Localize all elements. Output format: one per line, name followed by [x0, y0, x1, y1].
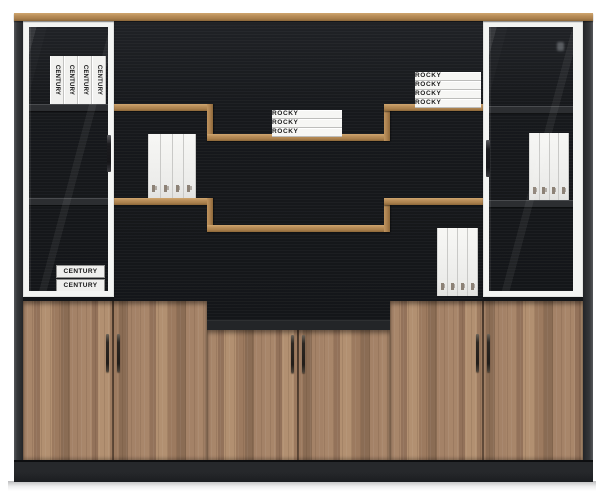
lower-doors-right: [390, 301, 583, 460]
binder-group-right-cabinet: [529, 133, 569, 200]
rocky-book: ROCKY: [415, 81, 481, 90]
binder: [550, 133, 560, 200]
bookcase-photo: ROCKY ROCKY ROCKY ROCKY ROCKY ROCKY ROCK…: [0, 0, 603, 500]
cabinet-shelf: [29, 198, 108, 205]
rocky-book-stack-right: ROCKY ROCKY ROCKY ROCKY: [415, 72, 481, 108]
binder: [173, 134, 185, 198]
binder: [529, 133, 540, 200]
century-book: CENTURY: [64, 56, 78, 104]
century-book: CENTURY: [50, 56, 64, 104]
top-trim: [14, 13, 593, 21]
base-plinth: [14, 460, 593, 482]
side-panel-left: [14, 20, 23, 482]
cabinet-shelf: [489, 106, 573, 113]
binder: [184, 134, 196, 198]
glass-cabinet-left-interior: CENTURY CENTURY CENTURY CENTURY CENTURY …: [29, 27, 108, 291]
century-book: CENTURY: [56, 265, 105, 278]
rocky-book: ROCKY: [272, 128, 342, 137]
shelf2-middle-low: [207, 225, 390, 232]
century-spine-books: CENTURY CENTURY CENTURY CENTURY: [50, 56, 106, 104]
lower-doors-left: [23, 301, 207, 460]
glass-cabinet-left: CENTURY CENTURY CENTURY CENTURY CENTURY …: [23, 21, 114, 297]
century-book: CENTURY: [92, 56, 106, 104]
century-book: CENTURY: [78, 56, 92, 104]
shelf1-left-high: [108, 104, 213, 111]
lower-doors-center: [207, 330, 390, 460]
glass-door-handle-left: [107, 135, 111, 172]
cabinet-shelf: [489, 200, 573, 207]
rocky-book-stack-left: ROCKY ROCKY ROCKY: [272, 110, 342, 137]
door-seam: [297, 330, 299, 460]
rocky-book: ROCKY: [415, 72, 481, 81]
century-stack-books: CENTURY CENTURY: [56, 264, 105, 291]
door-handle: [476, 334, 479, 372]
glass-cabinet-right: [483, 21, 583, 297]
door-seam: [482, 301, 484, 460]
binder: [458, 228, 468, 296]
glass-cabinet-right-interior: [489, 27, 573, 291]
century-book: CENTURY: [56, 279, 105, 291]
glass-door-handle-right: [486, 140, 490, 177]
shelf2-right-high: [384, 198, 489, 205]
binder: [448, 228, 458, 296]
glass-highlight-spot: [557, 42, 564, 51]
rocky-book: ROCKY: [272, 119, 342, 128]
binder: [148, 134, 161, 198]
door-handle: [291, 335, 294, 373]
binder: [540, 133, 550, 200]
door-handle: [117, 334, 120, 372]
center-platform-lip: [207, 320, 390, 330]
binder: [468, 228, 478, 296]
rocky-book: ROCKY: [415, 99, 481, 108]
binder-group-bottom-right: [437, 228, 478, 296]
side-panel-right: [583, 20, 593, 482]
binder-group-middle-left: [148, 134, 196, 198]
shelf2-left-high: [108, 198, 213, 205]
door-seam: [112, 301, 114, 460]
rocky-book: ROCKY: [415, 90, 481, 99]
binder: [559, 133, 569, 200]
door-handle: [487, 334, 490, 372]
door-handle: [106, 334, 109, 372]
binder: [437, 228, 448, 296]
cabinet-shelf: [29, 104, 108, 111]
binder: [161, 134, 173, 198]
door-handle: [302, 335, 305, 373]
rocky-book: ROCKY: [272, 110, 342, 119]
floor-shadow: [8, 481, 596, 491]
